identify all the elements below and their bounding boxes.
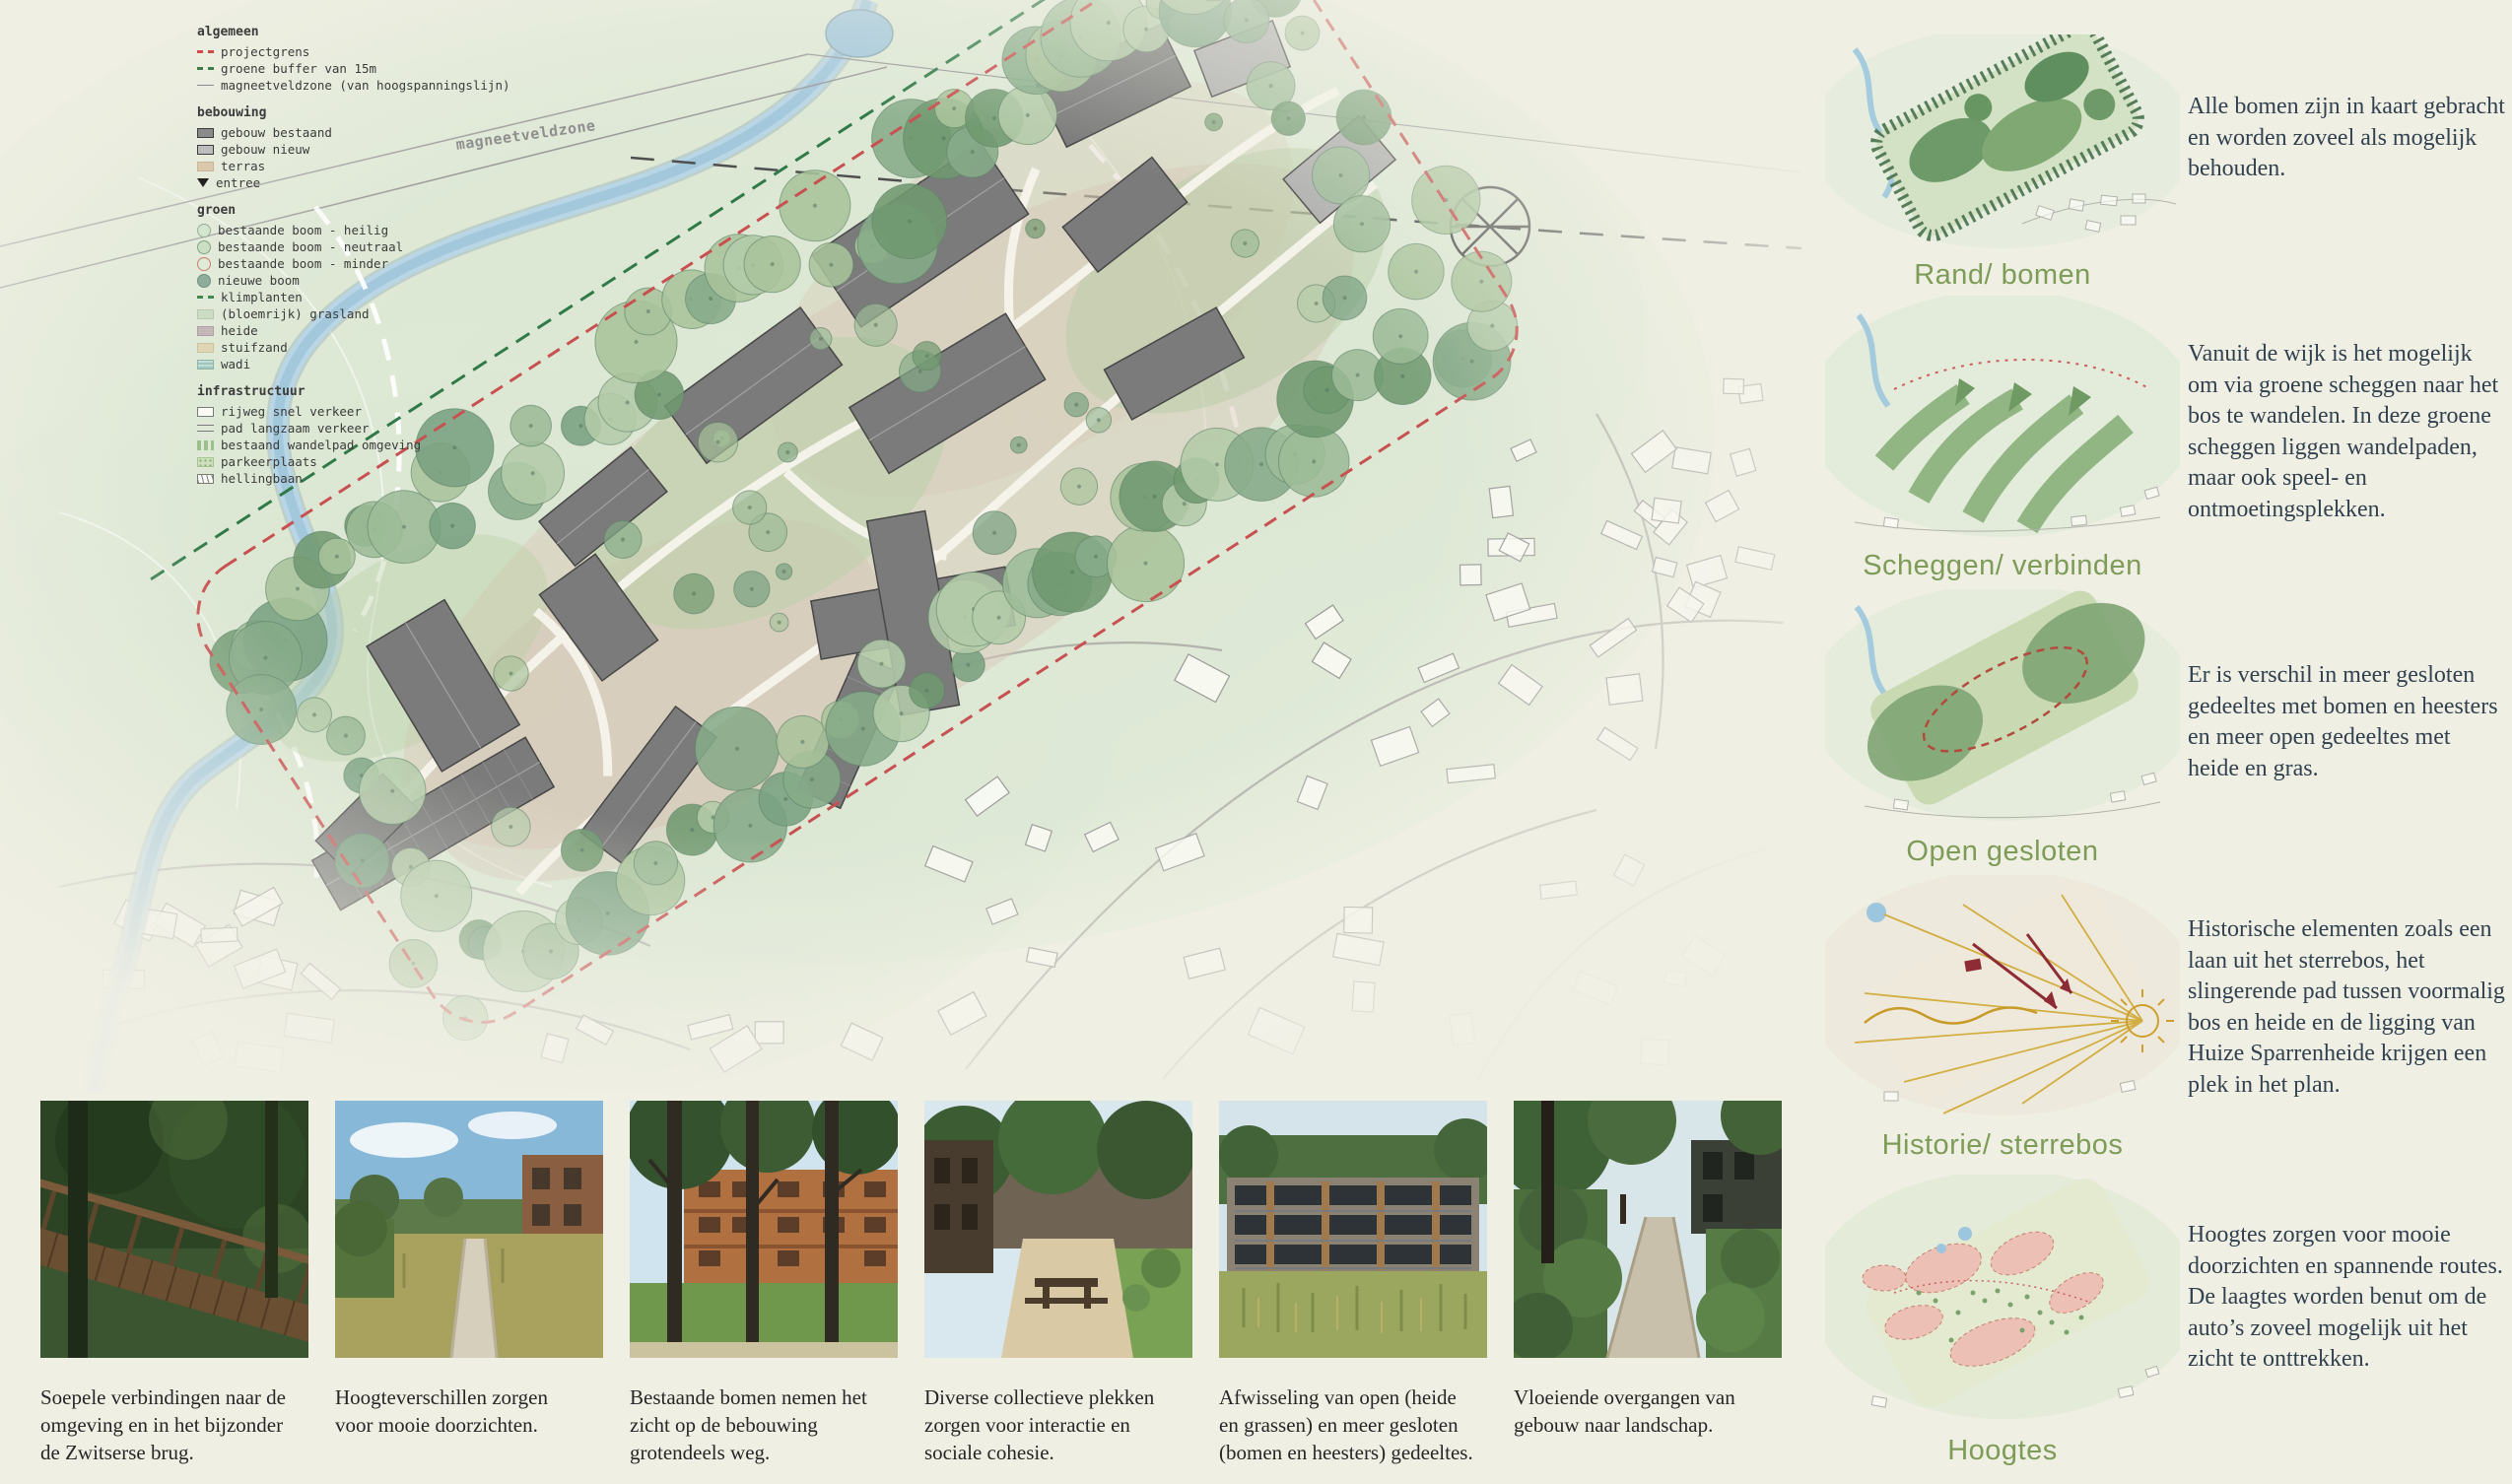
panel-label-scheggen-verbinden: Scheggen/ verbinden (1825, 550, 2180, 582)
panel-text-hoogtes: Hoogtes zorgen voor mooie doorzichten en… (2188, 1220, 2505, 1376)
heide-swatch (197, 326, 214, 336)
gebouw-nieuw-swatch (197, 145, 214, 155)
photo-caption: Bestaande bomen nemen het zicht op de be… (630, 1383, 884, 1466)
legend-item: nieuwe boom (197, 272, 522, 289)
legend-section-algemeen: algemeen projectgrens groene buffer van … (197, 24, 522, 94)
diagram-historie-sterrebos (1825, 875, 2180, 1123)
diagram-rand-bomen (1825, 34, 2180, 253)
legend-item: terras (197, 158, 522, 174)
photo-afwisseling-image (1219, 1101, 1487, 1358)
wandelpad-swatch (197, 440, 214, 450)
photo-bestaande-bomen-image (630, 1101, 898, 1358)
photo-afwisseling-open-gesloten: Afwisseling van open (heide en grassen) … (1219, 1101, 1487, 1358)
legend-item: bestaand wandelpad omgeving (197, 437, 522, 453)
map-legend: algemeen projectgrens groene buffer van … (197, 24, 522, 498)
boom-heilig-swatch (197, 224, 211, 237)
legend-item: magneetveldzone (van hoogspanningslijn) (197, 77, 522, 94)
panel-hoogtes: Hoogtes Hoogtes zorgen voor mooie doorzi… (1825, 1175, 2512, 1470)
legend-item: (bloemrijk) grasland (197, 305, 522, 322)
photo-zwitserse-brug: Soepele verbindingen naar de omgeving en… (40, 1101, 308, 1358)
stuifzand-swatch (197, 343, 214, 353)
terras-swatch (197, 162, 214, 171)
panel-text-historie-sterrebos: Historische elementen zoals een laan uit… (2188, 914, 2505, 1101)
legend-item: bestaande boom - heilig (197, 222, 522, 238)
grasland-swatch (197, 309, 214, 319)
legend-item: gebouw nieuw (197, 141, 522, 158)
hellingbaan-swatch (197, 474, 214, 484)
boom-minder-swatch (197, 257, 211, 271)
diagram-hoogtes (1825, 1175, 2180, 1429)
boom-neutraal-swatch (197, 240, 211, 254)
panel-scheggen-verbinden: Scheggen/ verbinden Vanuit de wijk is he… (1825, 296, 2512, 589)
pad-langzaam-swatch (197, 425, 214, 432)
photo-caption: Soepele verbindingen naar de omgeving en… (40, 1383, 295, 1466)
parkeerplaats-swatch (197, 457, 214, 467)
panel-text-open-gesloten: Er is verschil in meer gesloten gedeelte… (2188, 660, 2505, 784)
legend-item: pad langzaam verkeer (197, 420, 522, 437)
gebouw-bestaand-swatch (197, 128, 214, 138)
photo-hoogteverschillen: Hoogteverschillen zorgen voor mooie door… (335, 1101, 603, 1358)
photo-caption: Diverse collectieve plekken zorgen voor … (924, 1383, 1179, 1466)
panel-text-rand-bomen: Alle bomen zijn in kaart gebracht en wor… (2188, 92, 2505, 185)
legend-item: stuifzand (197, 339, 522, 356)
legend-item: groene buffer van 15m (197, 60, 522, 77)
rijweg-swatch (197, 407, 214, 417)
photo-caption: Hoogteverschillen zorgen voor mooie door… (335, 1383, 589, 1439)
legend-item: entree (197, 174, 522, 191)
photo-hoogteverschillen-image (335, 1101, 603, 1358)
photo-caption: Vloeiende overgangen van gebouw naar lan… (1514, 1383, 1768, 1439)
projectgrens-swatch (197, 50, 214, 53)
legend-item: heide (197, 322, 522, 339)
panel-historie-sterrebos: Historie/ sterrebos Historische elemente… (1825, 875, 2512, 1171)
legend-section-bebouwing: bebouwing gebouw bestaand gebouw nieuw t… (197, 104, 522, 191)
photo-collectieve-plekken: Diverse collectieve plekken zorgen voor … (924, 1101, 1192, 1358)
legend-section-infrastructuur: infrastructuur rijweg snel verkeer pad l… (197, 383, 522, 487)
photo-collectieve-plekken-image (924, 1101, 1192, 1358)
photo-zwitserse-brug-image (40, 1101, 308, 1358)
panel-label-historie-sterrebos: Historie/ sterrebos (1825, 1129, 2180, 1162)
legend-item: rijweg snel verkeer (197, 403, 522, 420)
legend-item: klimplanten (197, 289, 522, 305)
groene-buffer-swatch (197, 67, 214, 70)
panel-label-open-gesloten: Open gesloten (1825, 836, 2180, 868)
masterplan-board: magneetveldzone algemeen projectgrens gr… (0, 0, 2512, 1484)
legend-item: parkeerplaats (197, 453, 522, 470)
panel-text-scheggen-verbinden: Vanuit de wijk is het mogelijk om via gr… (2188, 339, 2505, 525)
entree-swatch (197, 178, 209, 187)
nieuwe-boom-swatch (197, 274, 211, 288)
photo-caption: Afwisseling van open (heide en grassen) … (1219, 1383, 1473, 1466)
klimplanten-swatch (197, 296, 214, 299)
diagram-scheggen-verbinden (1825, 296, 2180, 544)
legend-item: hellingbaan (197, 470, 522, 487)
panel-rand-bomen: Rand/ bomen Alle bomen zijn in kaart geb… (1825, 34, 2512, 296)
panel-label-hoogtes: Hoogtes (1825, 1435, 2180, 1467)
photo-bestaande-bomen: Bestaande bomen nemen het zicht op de be… (630, 1101, 898, 1358)
legend-item: wadi (197, 356, 522, 372)
legend-section-groen: groen bestaande boom - heilig bestaande … (197, 202, 522, 372)
photo-vloeiende-overgangen: Vloeiende overgangen van gebouw naar lan… (1514, 1101, 1782, 1358)
legend-item: gebouw bestaand (197, 124, 522, 141)
panel-open-gesloten: Open gesloten Er is verschil in meer ges… (1825, 589, 2512, 875)
legend-item: bestaande boom - neutraal (197, 238, 522, 255)
legend-item: projectgrens (197, 43, 522, 60)
magneetveldzone-swatch (197, 85, 214, 86)
wadi-swatch (197, 360, 214, 370)
legend-item: bestaande boom - minder (197, 255, 522, 272)
photo-vloeiende-overgangen-image (1514, 1101, 1782, 1358)
panel-label-rand-bomen: Rand/ bomen (1825, 259, 2180, 292)
diagram-open-gesloten (1825, 589, 2180, 830)
